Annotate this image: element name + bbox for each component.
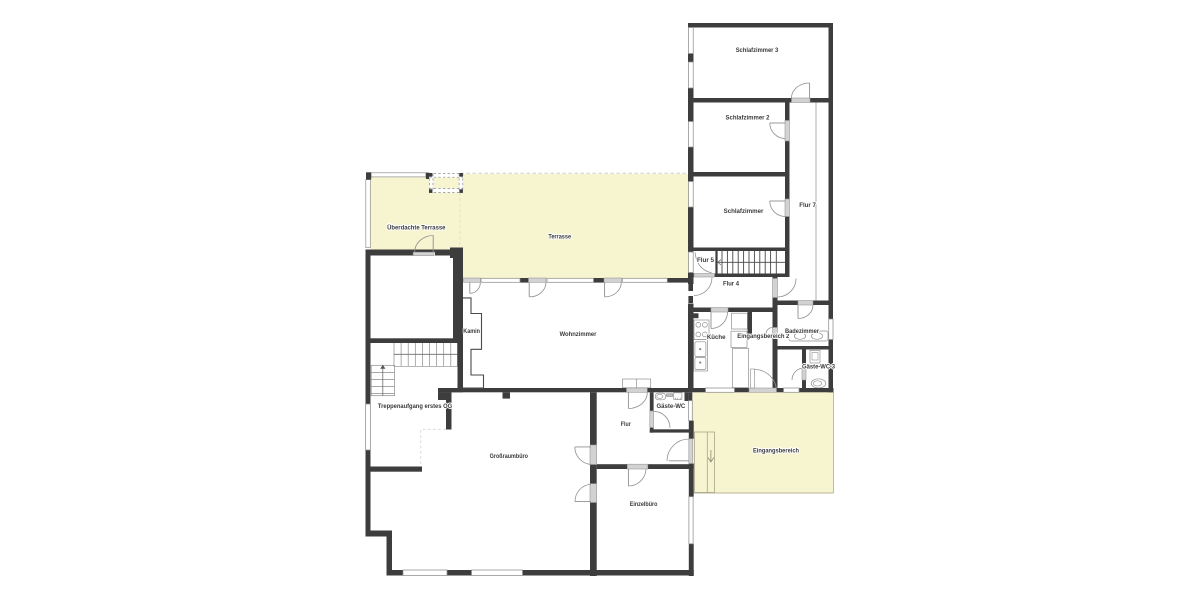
svg-text:Wohnzimmer: Wohnzimmer [560,331,597,338]
svg-text:Flur 5: Flur 5 [697,257,715,264]
svg-text:Flur 4: Flur 4 [723,280,740,287]
svg-text:Gäste-WC: Gäste-WC [657,403,686,410]
svg-text:Flur 7: Flur 7 [799,202,816,209]
svg-text:Einzelbüro: Einzelbüro [630,501,658,508]
svg-text:Küche: Küche [707,334,726,341]
svg-text:Treppenaufgang erstes OG: Treppenaufgang erstes OG [378,403,452,410]
svg-text:Flur: Flur [621,421,632,428]
svg-text:Gäste-WC 3: Gäste-WC 3 [802,364,836,371]
svg-text:Schlafzimmer 3: Schlafzimmer 3 [736,47,779,54]
svg-text:Eingangsbereich 2: Eingangsbereich 2 [737,333,790,340]
svg-text:Terrasse: Terrasse [548,234,571,241]
svg-text:Schlafzimmer: Schlafzimmer [724,208,764,215]
svg-text:Schlafzimmer 2: Schlafzimmer 2 [726,115,771,122]
svg-text:Kamin: Kamin [463,328,480,335]
svg-text:Eingangsbereich: Eingangsbereich [753,448,799,455]
svg-text:Badezimmer: Badezimmer [785,328,820,335]
svg-text:Überdachte Terrasse: Überdachte Terrasse [387,225,446,232]
svg-text:Großraumbüro: Großraumbüro [490,453,529,460]
